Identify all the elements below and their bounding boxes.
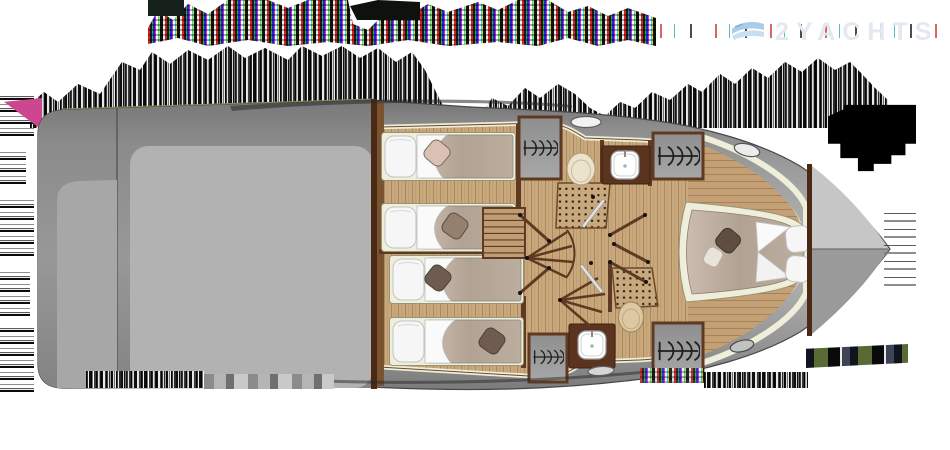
sink-drain — [590, 344, 594, 348]
deck-hatch — [571, 117, 601, 128]
glitch-noise-bottom — [204, 374, 334, 389]
wardrobe — [529, 334, 567, 382]
yacht-plan-page: 2YACHTS — [0, 0, 950, 450]
watermark: 2YACHTS — [730, 14, 940, 50]
wardrobe — [519, 117, 561, 179]
glitch-noise-bow — [884, 212, 916, 286]
stern-panel-left — [57, 180, 117, 388]
waves-logo-icon — [730, 19, 766, 45]
sink-drain — [623, 164, 627, 168]
single-berth — [390, 256, 524, 304]
brand-text: 2YACHTS — [775, 18, 938, 47]
glitch-noise-bottom — [704, 372, 808, 388]
stern-deck — [38, 99, 373, 388]
wardrobe — [653, 133, 703, 179]
glitch-noise-bottom — [86, 371, 204, 388]
glitch-noise-bottom — [640, 368, 704, 383]
shower-mat — [612, 268, 658, 308]
stern-panel-right — [130, 146, 373, 388]
bow-deck — [812, 166, 889, 334]
